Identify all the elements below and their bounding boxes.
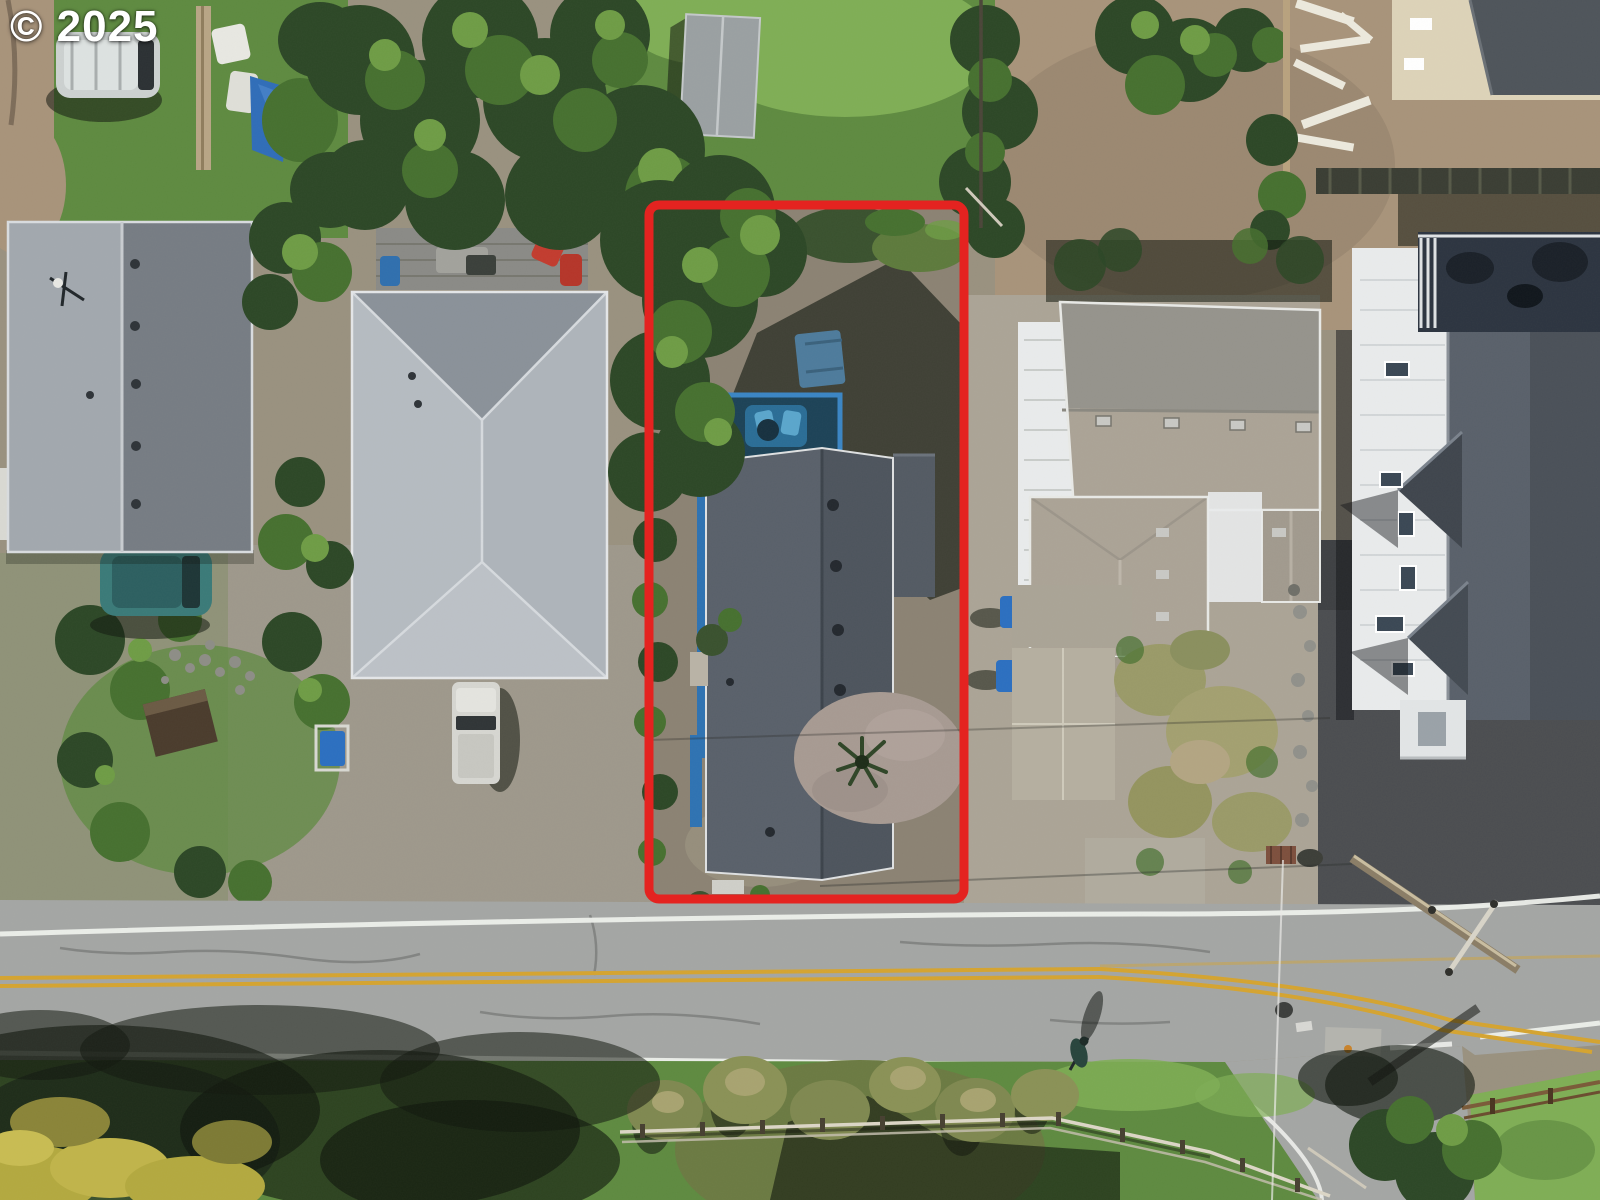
copyright-watermark: © 2025 (10, 2, 159, 52)
aerial-photo: © 2025 (0, 0, 1600, 1200)
photo-grain (0, 0, 1600, 1200)
aerial-scene (0, 0, 1600, 1200)
